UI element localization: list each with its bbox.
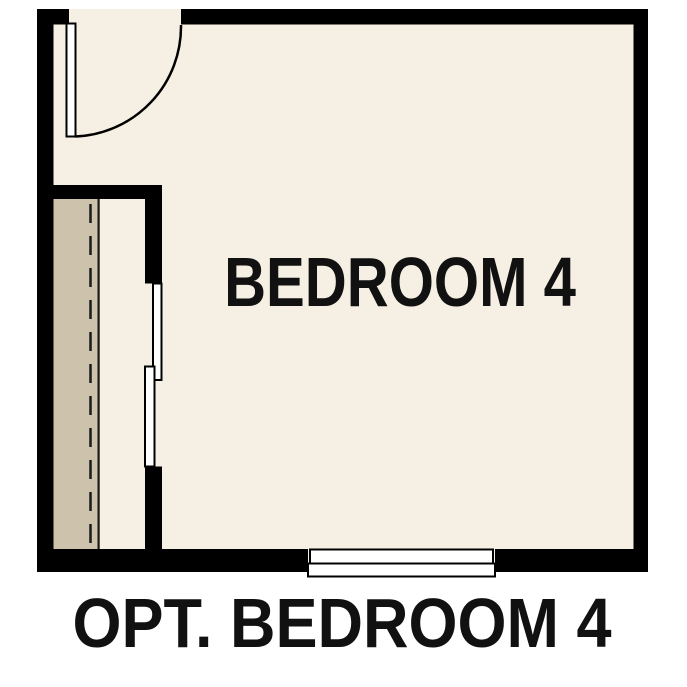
window-outer-band [308, 564, 495, 577]
sliding-door-panel-lower [145, 367, 155, 467]
bottom-wall-right-segment [495, 549, 648, 572]
closet-jamb-bottom [145, 467, 162, 550]
window-icon [308, 550, 495, 577]
top-wall-right-segment [181, 9, 648, 25]
plan-caption: OPT. BEDROOM 4 [0, 588, 687, 658]
closet-header-wall [37, 185, 162, 199]
window-inner-band [310, 550, 493, 564]
floorplan-canvas: BEDROOM 4 OPT. BEDROOM 4 [0, 0, 687, 687]
room-label: BEDROOM 4 [68, 247, 687, 317]
bottom-wall-left-segment [37, 549, 308, 572]
left-wall [37, 9, 54, 572]
door-leaf [67, 24, 76, 137]
